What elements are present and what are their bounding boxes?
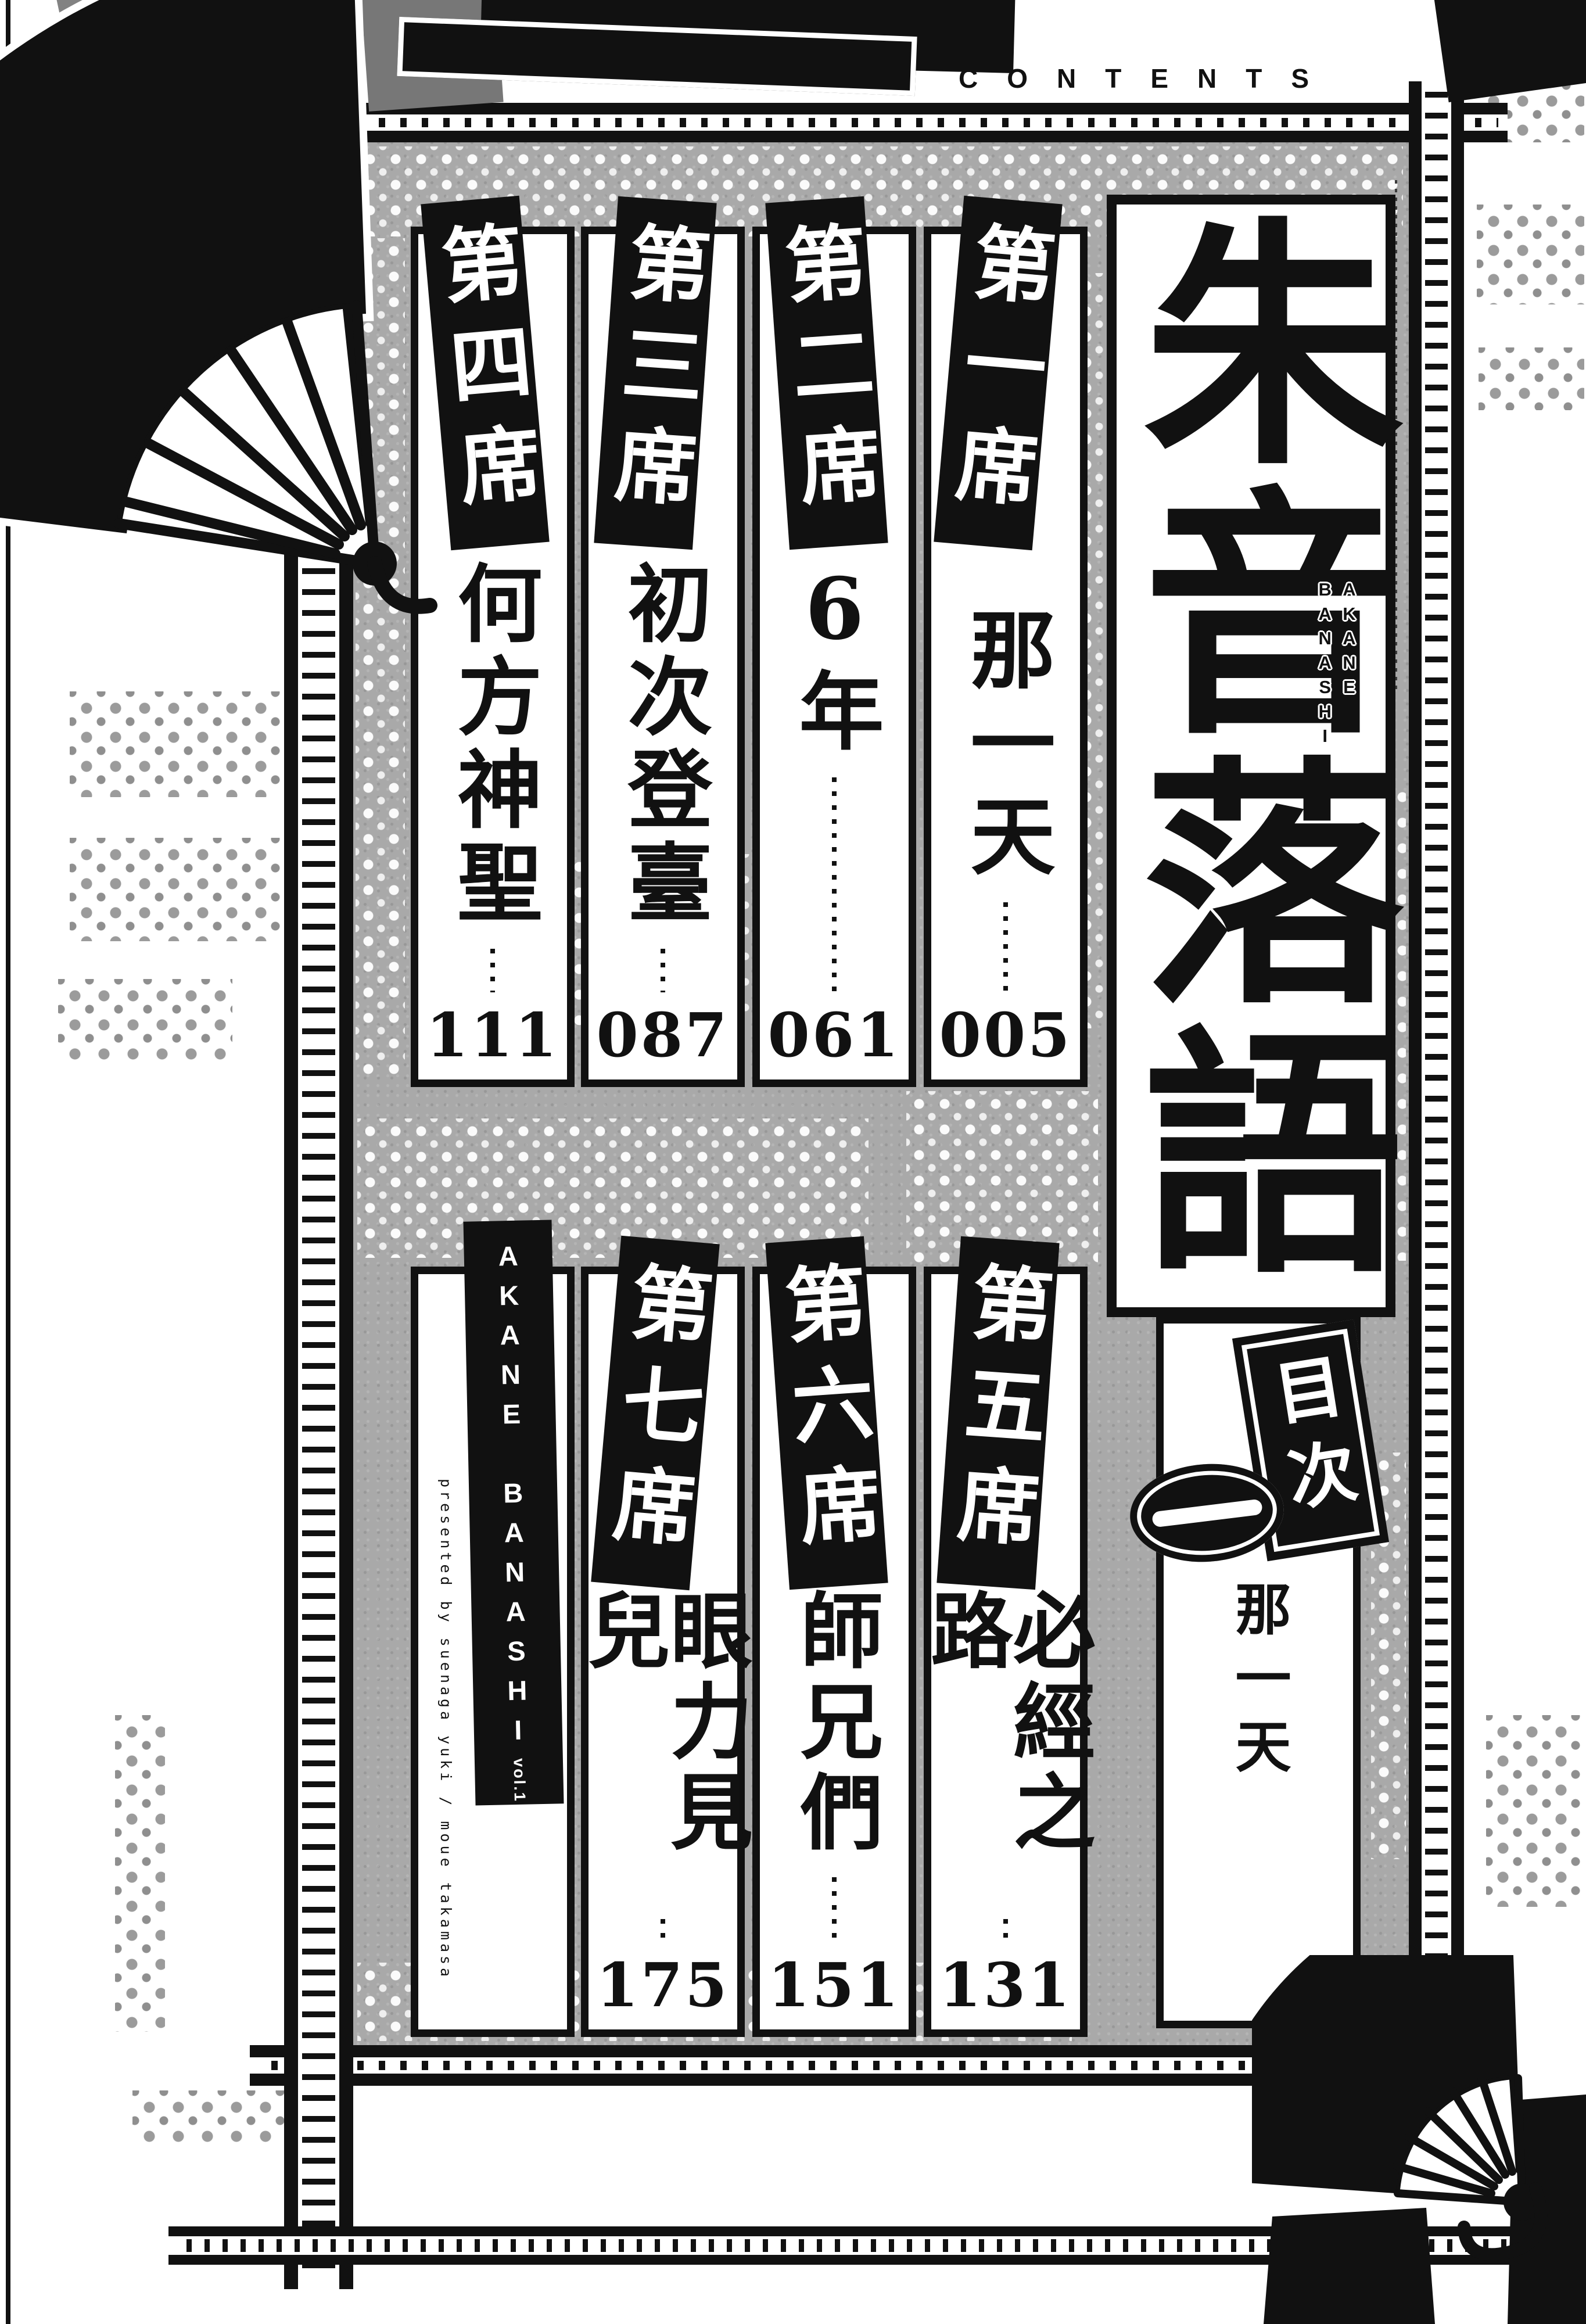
romaji-line: BANASHI [1315, 579, 1335, 750]
chapter-page-number: 087 [596, 1005, 729, 1066]
series-credit-name: AKANE BANASHI [494, 1240, 533, 1755]
chapter-title: 眼力見兒 [580, 1588, 745, 1902]
chapter-page-number: 061 [767, 1005, 900, 1066]
chapter-title: 何方神聖 [450, 560, 535, 931]
frame-right-strip [1409, 81, 1464, 2126]
margin-dot-patch [1479, 347, 1584, 410]
margin-dot-patch [1486, 1715, 1584, 1907]
margin-dot-patch [115, 1715, 165, 2032]
margin-dot-patch [70, 838, 284, 941]
chapter-column-6: 第六席 師兄們 151 [752, 1267, 916, 2037]
chapter-page-number: 175 [596, 1955, 729, 2015]
volume-subtitle: 那一天 [1230, 1580, 1286, 1786]
chapter-label: 第五席 [936, 1236, 1059, 1590]
chapter-title: 6年 [792, 560, 877, 760]
chapter-page-number: 131 [939, 1955, 1072, 2015]
toc-page: CONTENTS 朱音落語 AKANE BANASHI 目次 那一天 第一席 那… [0, 0, 1586, 2324]
presented-by-credit: presented by suenaga yuki / moue takamas… [437, 1479, 454, 1980]
chapter-title: 師兄們 [793, 1588, 875, 1860]
dotted-leader [832, 777, 837, 992]
series-volume: vol.1 [509, 1758, 529, 1803]
chapter-label: 第二席 [765, 196, 888, 550]
chapter-column-5: 第五席 必經之路 131 [924, 1267, 1088, 2037]
chapter-label: 第七席 [591, 1236, 719, 1591]
margin-dot-patch [1477, 205, 1584, 304]
chapter-page-number: 111 [426, 1005, 559, 1066]
dotted-leader [832, 1877, 837, 1942]
volume-info-column: 目次 那一天 [1156, 1316, 1361, 2028]
margin-dot-patch [132, 2090, 289, 2144]
chapter-page-number: 005 [939, 1005, 1072, 1066]
folding-fan-icon [1252, 1955, 1586, 2324]
chapter-column-3: 第三席 初次登臺 087 [581, 227, 745, 1087]
dotted-leader [490, 949, 495, 992]
volume-one-glyph [1151, 1498, 1263, 1527]
chapter-title: 初次登臺 [620, 560, 705, 931]
series-title: 朱音落語 [1121, 209, 1382, 1307]
bg-dot-cluster [357, 1118, 869, 1258]
folding-fan-icon [0, 0, 447, 636]
chapter-label: 第三席 [594, 196, 716, 550]
bg-dot-cluster [906, 1091, 1098, 1263]
margin-dot-patch [70, 691, 284, 797]
margin-dot-patch [58, 979, 232, 1060]
credits-column: AKANE BANASHI vol.1 presented by suenaga… [411, 1267, 575, 2037]
chapter-title: 那一天 [963, 606, 1048, 885]
contents-heading: CONTENTS [959, 63, 1400, 94]
dotted-leader [661, 1919, 665, 1942]
series-romaji: AKANE BANASHI [1312, 579, 1361, 750]
chapter-column-2: 第二席 6年 061 [752, 227, 916, 1087]
romaji-line: AKANE [1339, 579, 1359, 701]
chapter-label: 第六席 [765, 1236, 888, 1590]
dotted-leader [1003, 902, 1008, 992]
chapter-label: 第一席 [934, 196, 1062, 551]
chapter-title: 必經之路 [923, 1588, 1088, 1902]
chapter-page-number: 151 [767, 1955, 900, 2015]
series-credit-box: AKANE BANASHI vol.1 [463, 1220, 564, 1806]
dotted-leader [661, 949, 665, 992]
chapter-column-7: 第七席 眼力見兒 175 [581, 1267, 745, 2037]
chapter-column-1: 第一席 那一天 005 [924, 227, 1088, 1087]
dotted-leader [1003, 1919, 1008, 1942]
series-title-box: 朱音落語 AKANE BANASHI [1107, 195, 1395, 1317]
